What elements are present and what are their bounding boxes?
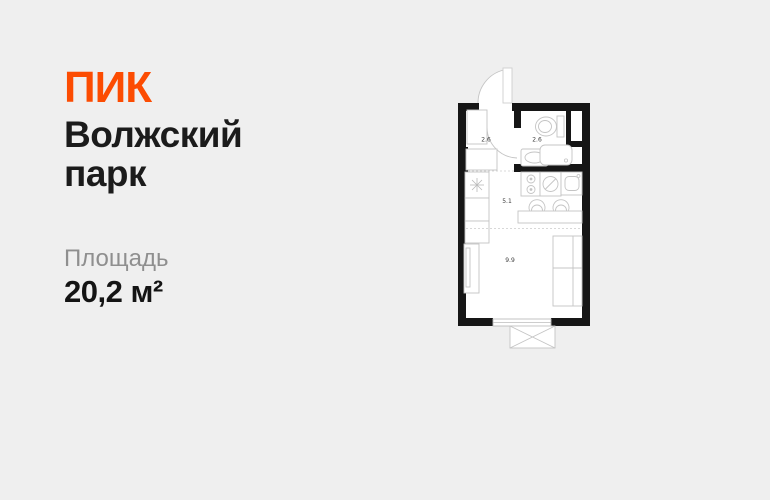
kitchen-sink-icon — [561, 172, 582, 195]
hallway-wardrobe — [466, 149, 497, 170]
room-area-label-bathroom: 2.6 — [532, 137, 542, 144]
bathroom-wall — [514, 103, 521, 128]
washing-machine-icon — [540, 172, 561, 196]
shower-icon — [540, 145, 572, 165]
snowflake-icon — [470, 178, 484, 192]
kitchen-cabinet — [465, 221, 489, 243]
fridge-icon — [465, 172, 489, 198]
room-area-label-kitchen: 5.1 — [502, 198, 512, 205]
kitchen-table — [518, 211, 582, 223]
room-area-label-hallway: 2.6 — [481, 137, 491, 144]
toilet-icon — [536, 116, 565, 137]
kitchen-cabinet — [465, 198, 489, 221]
bed — [553, 236, 582, 306]
entrance-door — [478, 68, 512, 103]
wardrobe — [464, 244, 479, 293]
floorplan: 2.6 2.6 5.1 9.9 — [0, 0, 770, 500]
room-area-label-living: 9.9 — [505, 257, 515, 264]
window — [493, 319, 551, 326]
balcony — [510, 326, 555, 348]
stove-icon — [521, 172, 540, 196]
